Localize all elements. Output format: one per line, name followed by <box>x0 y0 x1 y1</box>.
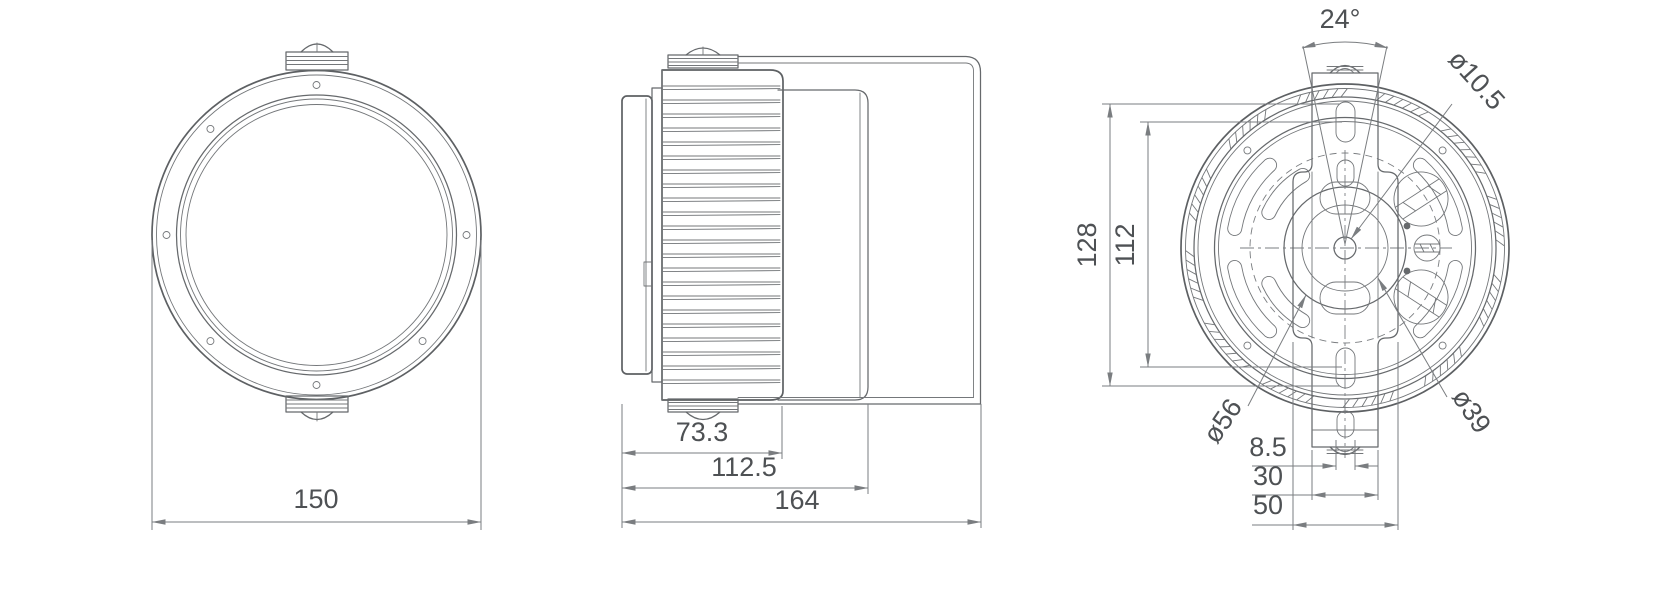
side-rear-housing <box>778 90 868 400</box>
front-view: 150 <box>152 43 481 530</box>
rear-view: 24° ø10.5 ø56 ø39 128 112 <box>1072 4 1511 530</box>
dim-label-112: 112 <box>1110 223 1140 266</box>
dim-label-o56: ø56 <box>1197 393 1248 448</box>
rear-slot-bottom <box>1336 348 1355 388</box>
leader-boss-56: ø56 <box>1197 295 1306 449</box>
dim-label-8-5: 8.5 <box>1249 432 1287 462</box>
dim-front-diameter: 150 <box>152 240 481 530</box>
leader-boss-39: ø39 <box>1378 278 1497 439</box>
front-top-tab <box>286 43 348 70</box>
side-heatsink <box>662 70 783 400</box>
front-rim-holes <box>163 82 470 389</box>
dim-label-112-5: 112.5 <box>711 452 777 482</box>
side-bezel <box>622 96 652 374</box>
dim-rear-vertical: 128 112 <box>1072 104 1342 386</box>
dim-label-30: 30 <box>1253 461 1283 491</box>
front-bottom-tab <box>286 396 348 421</box>
dim-label-24deg: 24° <box>1320 4 1361 34</box>
side-step-ring <box>652 88 662 382</box>
dim-label-150: 150 <box>293 484 338 514</box>
dim-side-lengths: 73.3 112.5 164 <box>622 404 981 528</box>
dim-label-164: 164 <box>774 485 819 515</box>
side-top-tab <box>668 47 738 68</box>
side-heatsink-fins <box>662 86 780 384</box>
dim-label-o10-5: ø10.5 <box>1442 44 1510 115</box>
technical-drawing-sheet: 150 <box>0 0 1656 609</box>
side-view: 73.3 112.5 164 <box>622 47 981 528</box>
dim-label-50: 50 <box>1253 490 1283 520</box>
dim-label-128: 128 <box>1072 222 1102 267</box>
dim-label-o39: ø39 <box>1446 383 1497 438</box>
dim-label-73-3: 73.3 <box>676 417 729 447</box>
dim-rear-bottom: 8.5 30 50 <box>1249 342 1398 530</box>
three-view-drawing: 150 <box>0 0 1656 609</box>
rear-bracket <box>1293 66 1398 455</box>
